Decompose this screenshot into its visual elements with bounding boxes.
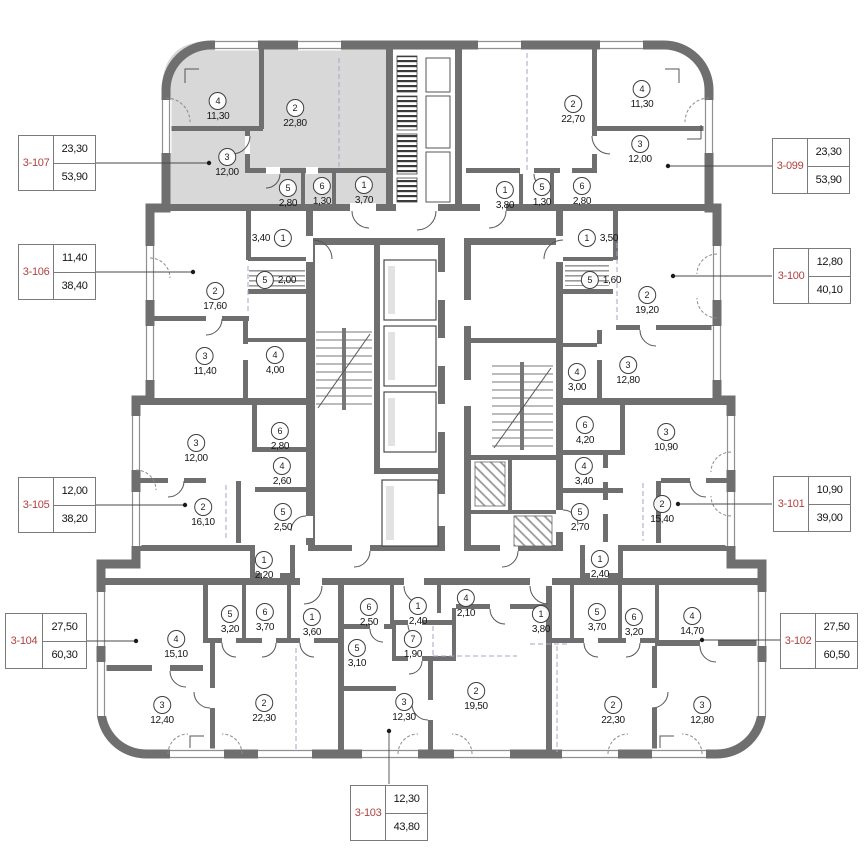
unit-area-2: 60,50 <box>816 642 857 669</box>
unit-label-3-106[interactable]: 3-106 11,4038,40 <box>18 244 96 300</box>
unit-id: 3-099 <box>773 139 808 193</box>
unit-label-3-103[interactable]: 3-103 12,3043,80 <box>350 785 428 841</box>
unit-area-1: 27,50 <box>816 614 857 642</box>
unit-id: 3-100 <box>774 249 809 303</box>
unit-id: 3-103 <box>351 786 386 840</box>
unit-area-1: 11,40 <box>54 245 95 273</box>
unit-id: 3-102 <box>781 614 816 668</box>
unit-area-2: 53,90 <box>54 164 95 191</box>
unit-area-1: 10,90 <box>809 477 850 505</box>
unit-label-3-105[interactable]: 3-105 12,0038,20 <box>18 477 96 533</box>
unit-label-3-099[interactable]: 3-099 23,3053,90 <box>772 138 850 194</box>
floor-plan-page: 411,30 222,80 312,00 52,80 61,30 13,70 2… <box>0 0 864 864</box>
unit-area-2: 38,40 <box>54 273 95 300</box>
unit-area-2: 60,30 <box>43 642 86 669</box>
unit-label-3-104[interactable]: 3-104 27,5060,30 <box>5 613 87 669</box>
unit-area-1: 12,80 <box>809 249 850 277</box>
unit-label-3-107[interactable]: 3-107 23,3053,90 <box>18 135 96 191</box>
unit-label-3-100[interactable]: 3-100 12,8040,10 <box>773 248 851 304</box>
unit-area-2: 40,10 <box>809 277 850 304</box>
unit-label-3-101[interactable]: 3-101 10,9039,00 <box>773 476 851 532</box>
unit-area-2: 39,00 <box>809 505 850 532</box>
unit-area-1: 12,30 <box>386 786 427 814</box>
unit-area-2: 38,20 <box>54 506 95 533</box>
unit-id: 3-105 <box>19 478 54 532</box>
unit-area-1: 27,50 <box>43 614 86 642</box>
unit-area-1: 23,30 <box>808 139 849 167</box>
unit-area-2: 53,90 <box>808 167 849 194</box>
unit-id: 3-104 <box>6 614 43 668</box>
unit-id: 3-107 <box>19 136 54 190</box>
elevators <box>382 260 438 546</box>
unit-area-1: 12,00 <box>54 478 95 506</box>
floor-plan-drawing <box>0 0 864 864</box>
unit-id: 3-101 <box>774 477 809 531</box>
unit-label-3-102[interactable]: 3-102 27,5060,50 <box>780 613 858 669</box>
unit-area-2: 43,80 <box>386 814 427 841</box>
unit-id: 3-106 <box>19 245 54 299</box>
unit-area-1: 23,30 <box>54 136 95 164</box>
